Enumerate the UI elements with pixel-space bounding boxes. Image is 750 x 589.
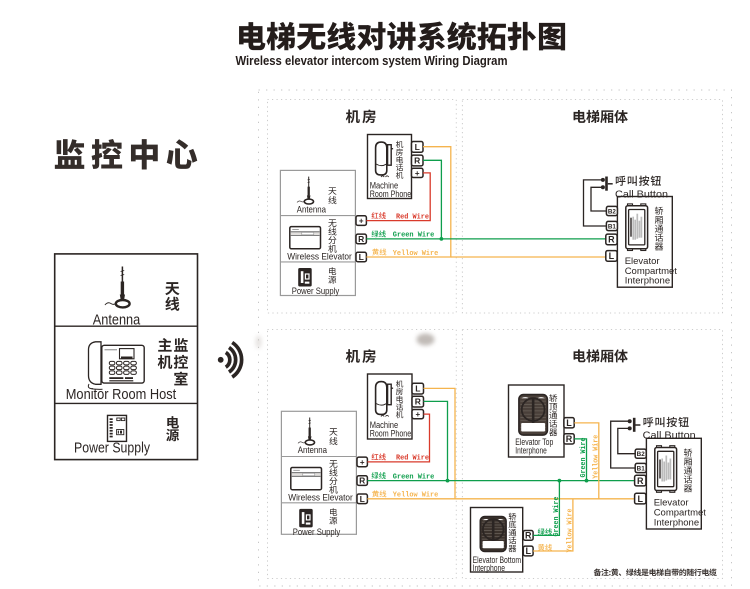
svg-text:Yellow Wire: Yellow Wire xyxy=(393,492,439,500)
svg-text:Wireless elevator intercom sys: Wireless elevator intercom system Wiring… xyxy=(236,53,508,68)
svg-text:L: L xyxy=(359,252,364,262)
svg-text:Power Supply: Power Supply xyxy=(293,526,341,537)
svg-text:Call Button: Call Button xyxy=(615,189,668,201)
svg-text:Antenna: Antenna xyxy=(298,444,328,455)
svg-text:Call Button: Call Button xyxy=(643,430,696,442)
svg-text:Red Wire: Red Wire xyxy=(396,213,429,221)
svg-text:B1: B1 xyxy=(608,223,617,230)
svg-text:R: R xyxy=(637,476,644,486)
svg-text:B2: B2 xyxy=(637,451,646,458)
svg-text:Red Wire: Red Wire xyxy=(396,455,429,463)
svg-text:R: R xyxy=(525,531,532,541)
svg-text:L: L xyxy=(415,142,420,152)
svg-text:L: L xyxy=(415,384,420,394)
svg-text:Interphone: Interphone xyxy=(473,563,506,574)
svg-text:B2: B2 xyxy=(608,208,617,215)
svg-text:Green Wire: Green Wire xyxy=(580,438,588,478)
svg-text:L: L xyxy=(525,546,531,556)
svg-text:R: R xyxy=(608,235,615,245)
svg-text:Power Supply: Power Supply xyxy=(74,440,151,456)
svg-text:Wireless Elevator: Wireless Elevator xyxy=(287,251,352,262)
svg-text:Antenna: Antenna xyxy=(93,313,141,329)
svg-text:Room Phone: Room Phone xyxy=(370,429,412,439)
svg-text:L: L xyxy=(360,494,365,504)
svg-text:Interphone: Interphone xyxy=(654,517,699,528)
svg-text:R: R xyxy=(359,476,365,486)
svg-text:Wireless Elevator: Wireless Elevator xyxy=(288,491,353,502)
svg-text:Green Wire: Green Wire xyxy=(393,473,435,481)
svg-text:+: + xyxy=(359,217,364,226)
svg-text:Yellow Wire: Yellow Wire xyxy=(393,250,439,258)
svg-text:Yellow Wire: Yellow Wire xyxy=(592,435,600,479)
svg-text:Monitor Room Host: Monitor Room Host xyxy=(66,387,177,403)
svg-text:L: L xyxy=(609,251,615,261)
svg-text:L: L xyxy=(566,418,572,428)
svg-text:Interphone: Interphone xyxy=(515,446,547,457)
svg-text:Room Phone: Room Phone xyxy=(370,189,412,199)
svg-text:Interphone: Interphone xyxy=(625,276,670,287)
svg-text:Yellow Wire: Yellow Wire xyxy=(567,509,575,553)
svg-text:R: R xyxy=(566,434,573,444)
svg-text:+: + xyxy=(415,410,420,419)
svg-text:Green Wire: Green Wire xyxy=(393,232,435,240)
svg-text:+: + xyxy=(360,458,365,467)
svg-text:L: L xyxy=(637,494,643,504)
svg-text:Antenna: Antenna xyxy=(297,203,327,214)
svg-text:R: R xyxy=(358,234,364,244)
svg-text:+: + xyxy=(415,169,420,178)
svg-text:R: R xyxy=(415,397,421,407)
svg-text:Power Supply: Power Supply xyxy=(292,285,340,296)
svg-text:R: R xyxy=(414,156,420,166)
svg-text:B1: B1 xyxy=(637,465,646,472)
svg-text:Green Wire: Green Wire xyxy=(553,497,561,537)
